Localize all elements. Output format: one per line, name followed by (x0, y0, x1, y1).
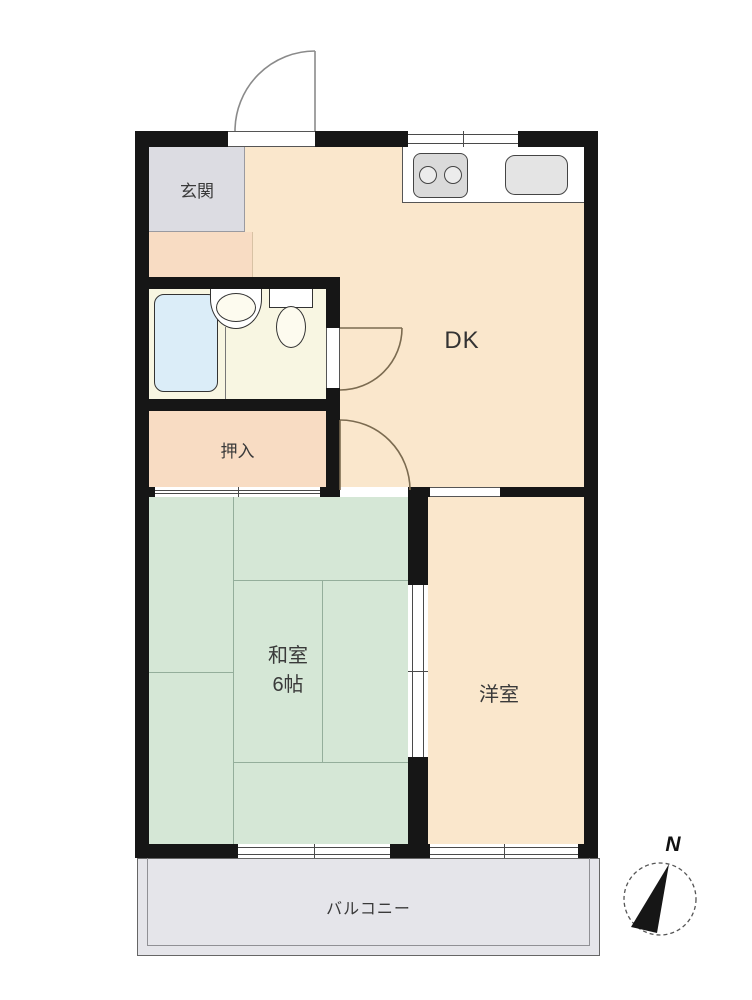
stove-burner-icon (444, 166, 462, 184)
wall-segment (408, 757, 428, 844)
wall-segment (135, 277, 340, 289)
japanese-room-label: 和室 6帖 (236, 641, 340, 701)
window-tick (463, 131, 464, 147)
western-room-label: 洋室 (449, 676, 549, 708)
washbasin-bowl-icon (216, 293, 256, 322)
closet-label: 押入 (149, 411, 326, 487)
entrance-door-opening (228, 131, 315, 147)
balcony-label: バルコニー (137, 892, 600, 922)
western-room-balcony-window (430, 844, 578, 858)
wall-segment (135, 399, 340, 411)
japanese-western-sliding-door (408, 585, 428, 757)
window-tick (504, 844, 505, 858)
wall-segment (390, 844, 430, 858)
wall-segment (578, 844, 598, 858)
wall-segment (500, 487, 598, 497)
western-room (428, 497, 584, 844)
wall-segment (135, 487, 155, 497)
dk-japanese-room-door-opening (340, 487, 408, 497)
japanese-room-balcony-window (238, 844, 390, 858)
kitchen-sink (505, 155, 568, 195)
japanese-room-name: 和室 (268, 642, 308, 671)
closet-sliding-door (155, 487, 320, 497)
toilet-bowl-icon (276, 306, 306, 348)
bathroom-door-opening (326, 328, 340, 388)
bathroom-partition-line (225, 327, 226, 399)
wall-segment (408, 497, 428, 585)
japanese-room-size: 6帖 (272, 671, 303, 700)
wall-segment (320, 487, 340, 497)
wall-segment (408, 487, 430, 497)
kitchen-window (408, 131, 518, 147)
dk-label: DK (426, 325, 498, 357)
tatami-line (149, 672, 234, 673)
bathtub (154, 294, 218, 392)
window-tick (408, 671, 428, 672)
wall-segment (326, 277, 340, 328)
tatami-line (233, 762, 408, 763)
wall-segment (135, 844, 238, 858)
wall-segment (315, 131, 408, 147)
entrance-door-swing (235, 51, 315, 131)
hallway (149, 232, 253, 277)
dk-western-room-opening (430, 487, 500, 497)
window-tick (314, 844, 315, 858)
tatami-line (233, 580, 408, 581)
floor-plan: 玄関 DK 押入 和室 6帖 洋室 バルコニー N (0, 0, 752, 1000)
wall-segment (326, 388, 340, 492)
tatami-line (233, 497, 234, 844)
entrance-label: 玄関 (149, 147, 245, 232)
compass-icon (624, 863, 696, 935)
window-tick (238, 487, 239, 497)
stove-burner-icon (419, 166, 437, 184)
compass-north-label: N (657, 832, 689, 858)
